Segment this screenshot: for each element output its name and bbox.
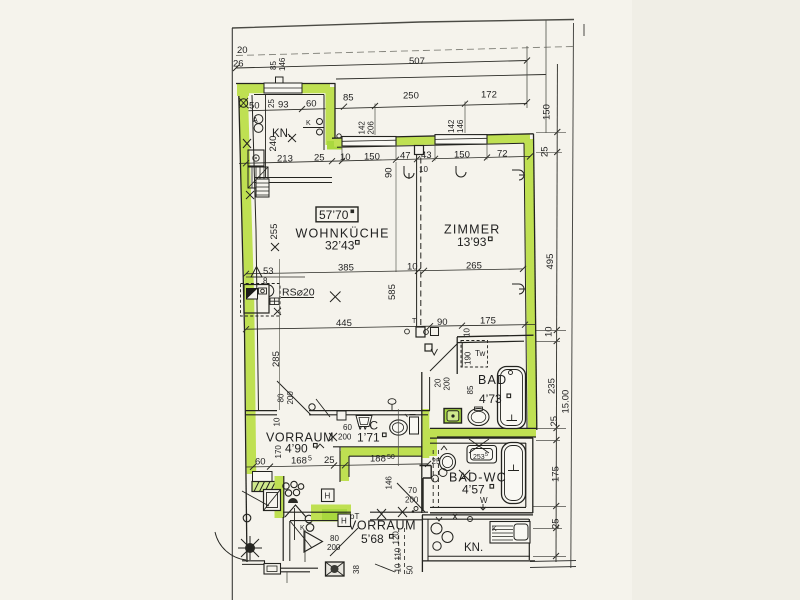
svg-text:53: 53 — [263, 266, 274, 277]
svg-text:150: 150 — [542, 104, 553, 120]
svg-text:50: 50 — [249, 101, 260, 112]
svg-text:oT: oT — [350, 512, 359, 521]
svg-text:93: 93 — [278, 100, 289, 111]
svg-text:200: 200 — [443, 377, 452, 391]
svg-text:5: 5 — [485, 452, 488, 458]
svg-text:213: 213 — [277, 153, 293, 164]
svg-text:507: 507 — [409, 56, 425, 67]
svg-text:57’70: 57’70 — [319, 208, 349, 222]
svg-text:25: 25 — [314, 153, 325, 164]
svg-text:385: 385 — [338, 263, 354, 274]
svg-text:25: 25 — [540, 146, 551, 157]
svg-text:K: K — [300, 525, 305, 532]
svg-text:K: K — [492, 526, 497, 533]
svg-text:170: 170 — [274, 445, 283, 459]
svg-text:146: 146 — [385, 476, 394, 490]
svg-text:4’90: 4’90 — [285, 442, 308, 456]
svg-text:25: 25 — [324, 455, 335, 466]
svg-text:90: 90 — [384, 167, 395, 178]
svg-text:188: 188 — [370, 454, 386, 465]
svg-text:H: H — [341, 517, 347, 526]
svg-text:85: 85 — [466, 385, 475, 394]
svg-text:25: 25 — [551, 518, 562, 529]
svg-text:190: 190 — [464, 351, 473, 365]
svg-text:70: 70 — [408, 486, 417, 495]
svg-text:5: 5 — [308, 456, 312, 463]
svg-text:25: 25 — [267, 99, 276, 108]
svg-text:10: 10 — [407, 262, 418, 273]
svg-text:146: 146 — [456, 119, 465, 133]
svg-text:445: 445 — [336, 318, 352, 329]
svg-text:BAD: BAD — [478, 373, 507, 387]
svg-text:85: 85 — [269, 61, 278, 70]
svg-text:175: 175 — [480, 316, 496, 327]
svg-text:146: 146 — [278, 57, 287, 71]
svg-text:38: 38 — [352, 565, 361, 574]
svg-text:72: 72 — [497, 149, 508, 160]
svg-text:120: 120 — [392, 531, 401, 545]
svg-text:10: 10 — [394, 563, 403, 572]
svg-text:10: 10 — [340, 152, 351, 163]
svg-text:585: 585 — [387, 284, 398, 300]
svg-text:5’68: 5’68 — [361, 532, 384, 546]
svg-text:168: 168 — [291, 456, 307, 467]
svg-text:172: 172 — [481, 90, 497, 101]
svg-text:110: 110 — [394, 547, 403, 560]
svg-text:265: 265 — [466, 261, 482, 272]
svg-text:150: 150 — [454, 149, 470, 160]
svg-text:255: 255 — [269, 224, 280, 240]
svg-text:W: W — [480, 496, 488, 505]
svg-text:10: 10 — [273, 417, 282, 426]
svg-text:A: A — [253, 117, 258, 124]
svg-text:200: 200 — [286, 391, 295, 405]
svg-text:10: 10 — [544, 326, 555, 337]
svg-text:K: K — [306, 120, 311, 127]
svg-text:60: 60 — [306, 99, 317, 110]
svg-text:250: 250 — [403, 91, 419, 102]
svg-text:142: 142 — [447, 119, 456, 133]
svg-text:Tw: Tw — [475, 349, 485, 358]
svg-text:90: 90 — [437, 317, 448, 328]
svg-text:80: 80 — [330, 534, 339, 543]
svg-text:20: 20 — [237, 45, 248, 56]
svg-text:200: 200 — [405, 496, 419, 505]
svg-text:25: 25 — [432, 457, 441, 466]
svg-text:RS⌀20: RS⌀20 — [282, 287, 315, 299]
svg-text:80: 80 — [277, 393, 286, 402]
svg-text:253: 253 — [473, 454, 485, 461]
svg-text:150: 150 — [364, 151, 380, 162]
svg-text:T: T — [412, 318, 417, 325]
svg-text:50: 50 — [387, 454, 395, 461]
svg-text:1’71: 1’71 — [357, 431, 380, 445]
svg-text:47: 47 — [400, 151, 411, 162]
svg-text:85: 85 — [343, 93, 354, 104]
svg-text:20: 20 — [434, 378, 443, 387]
svg-text:235: 235 — [547, 378, 558, 394]
svg-text:495: 495 — [545, 254, 556, 270]
svg-text:25: 25 — [549, 416, 560, 427]
svg-text:H: H — [325, 492, 331, 501]
svg-text:32’43: 32’43 — [325, 239, 355, 253]
svg-text:4’57: 4’57 — [462, 483, 485, 497]
svg-text:43: 43 — [421, 150, 432, 161]
svg-text:10: 10 — [419, 165, 428, 174]
svg-text:4’73: 4’73 — [479, 392, 502, 406]
svg-text:60: 60 — [255, 457, 266, 468]
svg-text:142: 142 — [358, 121, 367, 135]
svg-text:50: 50 — [406, 565, 415, 574]
svg-text:200: 200 — [338, 433, 352, 442]
svg-text:10: 10 — [463, 328, 472, 337]
svg-text:15.00: 15.00 — [561, 390, 572, 414]
svg-text:13’93: 13’93 — [457, 235, 487, 249]
svg-text:285: 285 — [271, 351, 282, 367]
svg-text:KN.: KN. — [464, 542, 483, 554]
svg-text:175: 175 — [551, 466, 562, 482]
svg-text:60: 60 — [343, 423, 352, 432]
svg-text:206: 206 — [367, 121, 376, 135]
